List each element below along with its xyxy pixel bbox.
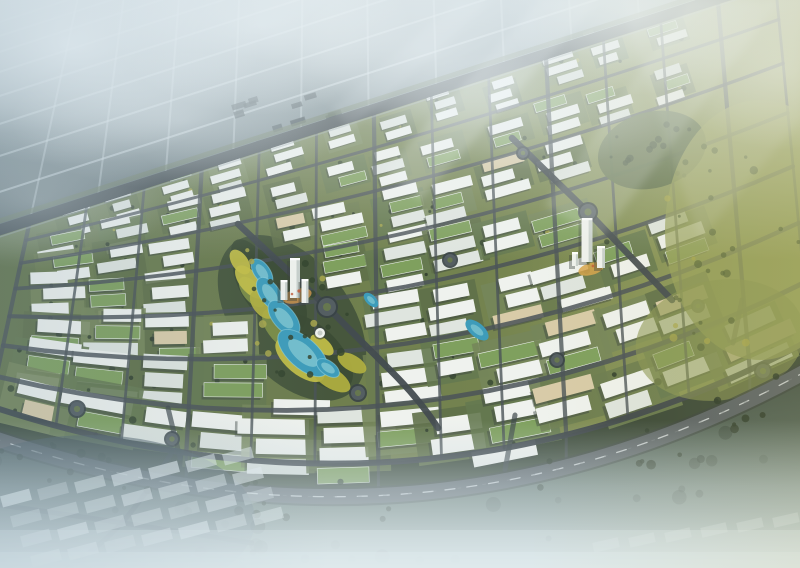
render-svg bbox=[0, 0, 800, 568]
aerial-city-render: Aerial masterplan rendering bbox=[0, 0, 800, 568]
render-figure: Aerial masterplan rendering bbox=[0, 0, 800, 568]
